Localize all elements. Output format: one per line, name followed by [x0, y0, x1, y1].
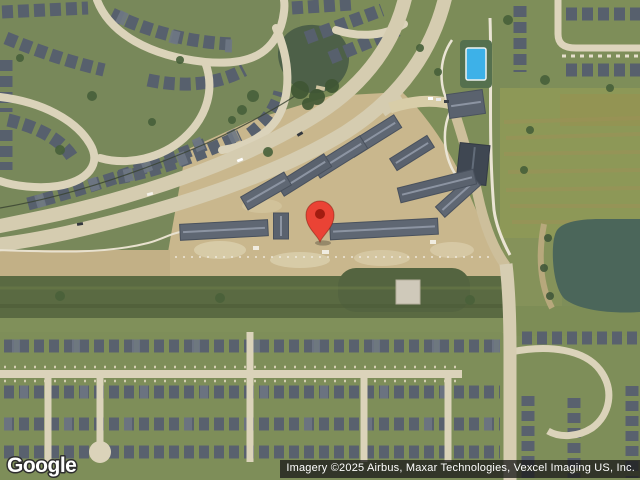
map-canvas[interactable]: Google Imagery ©2025 Airbus, Maxar Techn… — [0, 0, 640, 480]
attribution-text: Imagery ©2025 Airbus, Maxar Technologies… — [286, 462, 635, 474]
google-logo[interactable]: Google — [6, 454, 88, 478]
satellite-imagery — [0, 0, 640, 480]
attribution-bar: Imagery ©2025 Airbus, Maxar Technologies… — [280, 460, 640, 478]
swimming-pool — [466, 48, 486, 80]
google-logo-text: Google — [7, 454, 76, 477]
